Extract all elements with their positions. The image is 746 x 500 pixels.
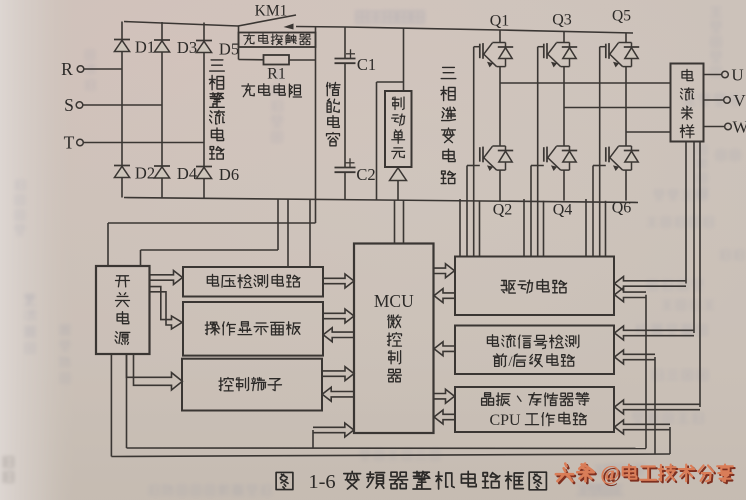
svg-text:S: S — [64, 95, 74, 115]
svg-text:D1: D1 — [135, 37, 155, 56]
svg-text:T: T — [64, 133, 75, 153]
svg-text:C2: C2 — [356, 165, 375, 184]
svg-text:D6: D6 — [219, 165, 239, 184]
svg-text:CPU: CPU — [489, 412, 521, 429]
svg-text:R1: R1 — [267, 66, 286, 83]
svg-text:Q1: Q1 — [490, 13, 510, 30]
svg-text:D5: D5 — [219, 39, 239, 58]
svg-text:MCU: MCU — [374, 291, 414, 311]
svg-text:V: V — [733, 91, 746, 110]
svg-text:Q4: Q4 — [553, 202, 573, 219]
svg-text:@: @ — [600, 461, 620, 485]
svg-text:D4: D4 — [177, 164, 197, 183]
svg-text:D2: D2 — [135, 163, 155, 182]
svg-text:C1: C1 — [357, 55, 376, 74]
svg-text:W: W — [732, 117, 746, 136]
svg-text:Q2: Q2 — [493, 202, 513, 219]
svg-text:Q6: Q6 — [612, 200, 632, 217]
svg-text:D3: D3 — [177, 38, 197, 57]
svg-text:1-6: 1-6 — [308, 471, 335, 493]
svg-text:Q3: Q3 — [552, 12, 572, 29]
svg-text:Q5: Q5 — [612, 7, 631, 24]
svg-text:U: U — [731, 66, 743, 85]
svg-text:R: R — [61, 59, 73, 79]
